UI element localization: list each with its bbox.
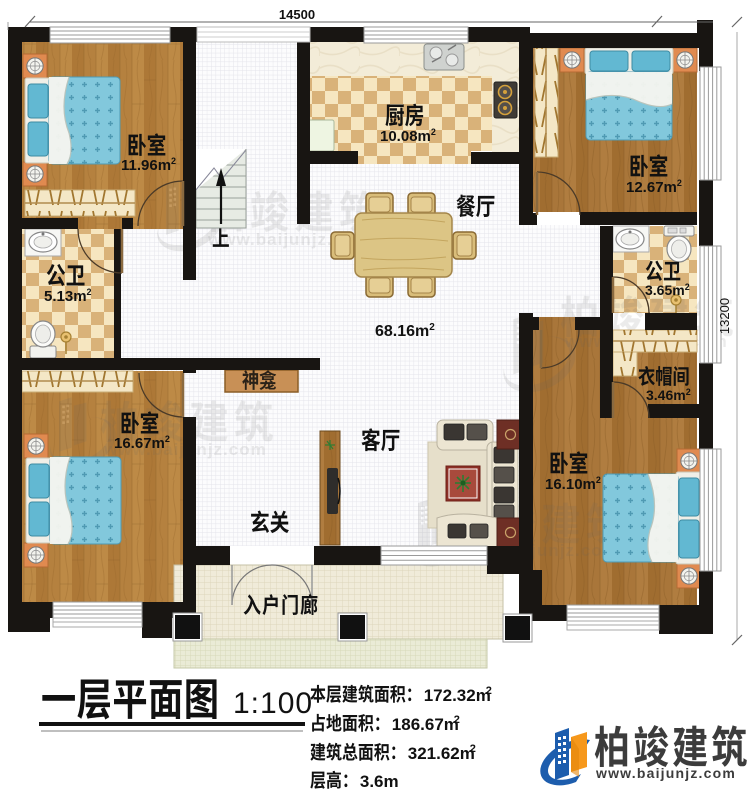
svg-text:13200: 13200 — [717, 298, 732, 334]
svg-text:16.67m2: 16.67m2 — [114, 434, 170, 452]
svg-text:1:100: 1:100 — [233, 687, 313, 720]
svg-text:16.10m2: 16.10m2 — [545, 475, 601, 493]
svg-text:10.08m2: 10.08m2 — [380, 127, 436, 145]
svg-text:186.67m: 186.67m — [392, 715, 459, 734]
svg-text:12.67m2: 12.67m2 — [626, 178, 682, 196]
svg-text:321.62m: 321.62m — [408, 744, 475, 763]
svg-text:3.65m2: 3.65m2 — [645, 282, 690, 298]
svg-text:172.32m: 172.32m — [424, 686, 491, 705]
svg-text:5.13m2: 5.13m2 — [44, 287, 92, 305]
svg-text:3.6m: 3.6m — [360, 772, 399, 791]
svg-text:11.96m2: 11.96m2 — [121, 156, 176, 174]
svg-text:www.baijunjz.com: www.baijunjz.com — [595, 765, 736, 781]
svg-text:2: 2 — [486, 685, 492, 697]
svg-text:3.46m2: 3.46m2 — [646, 387, 691, 403]
svg-text:14500: 14500 — [279, 7, 315, 22]
svg-text:68.16m2: 68.16m2 — [375, 322, 435, 340]
svg-text:2: 2 — [454, 714, 460, 726]
svg-text:2: 2 — [470, 743, 476, 755]
